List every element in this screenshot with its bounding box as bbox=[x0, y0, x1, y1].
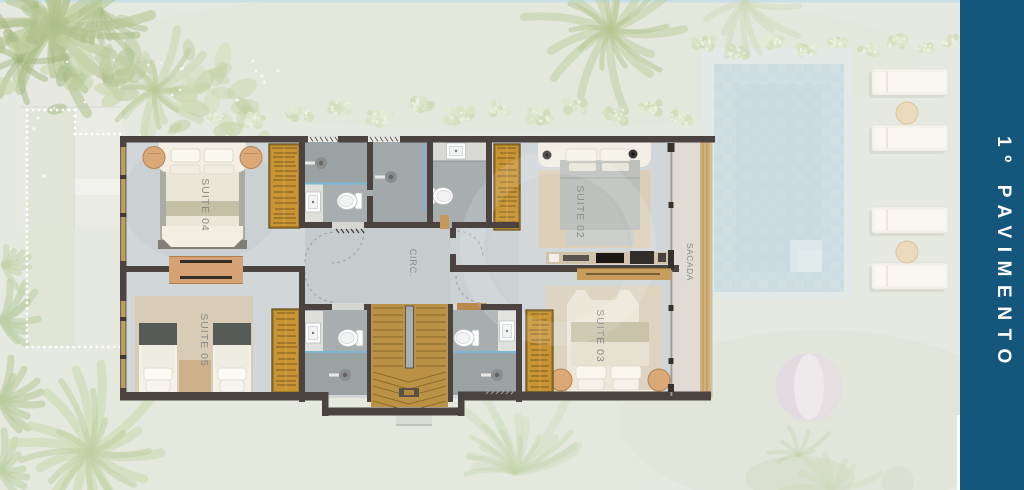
svg-text:SACADA: SACADA bbox=[685, 243, 695, 281]
svg-text:CIRC.: CIRC. bbox=[408, 249, 418, 278]
svg-text:SUITE 04: SUITE 04 bbox=[199, 178, 211, 232]
svg-text:SUITE 05: SUITE 05 bbox=[198, 313, 210, 367]
svg-text:1º PAVIMENTO: 1º PAVIMENTO bbox=[993, 136, 1014, 372]
